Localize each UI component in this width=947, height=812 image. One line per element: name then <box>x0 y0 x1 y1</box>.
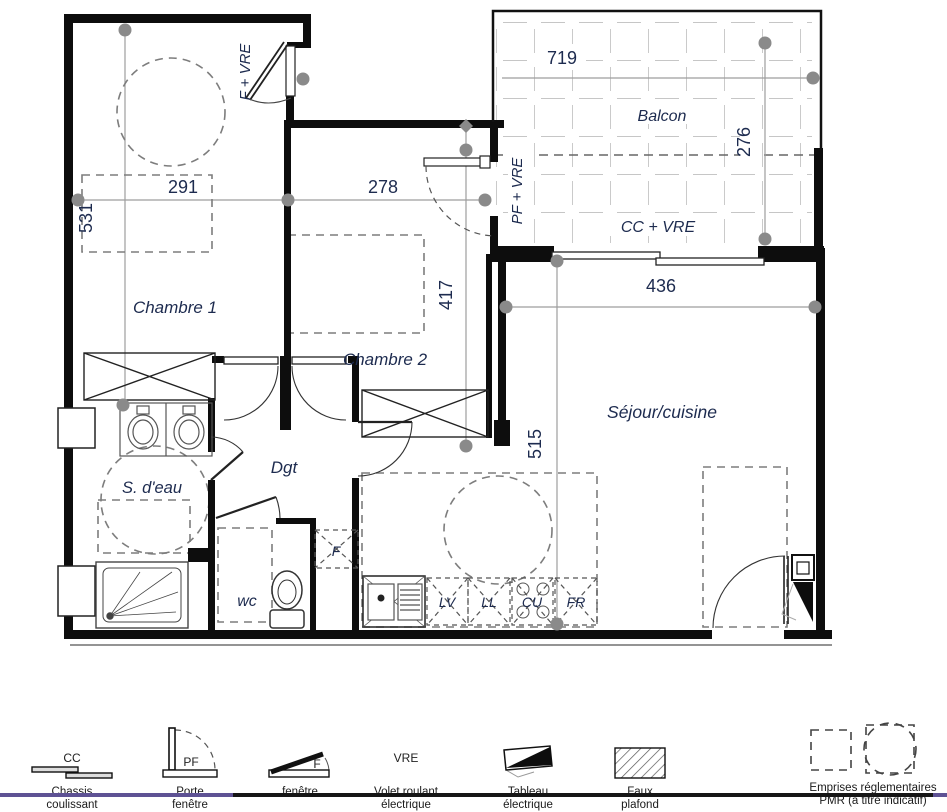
legend-code-vre: VRE <box>394 751 419 765</box>
legend-label-faux-2: plafond <box>621 799 659 812</box>
bottom-bar-purple-left <box>0 793 233 797</box>
legend-label-tableau-2: électrique <box>503 799 553 812</box>
room-label-chambre2: Chambre 2 <box>343 350 428 369</box>
dim-chambre1-width: 291 <box>168 177 198 197</box>
legend: CC Chassis coulissant PF Porte fenêtre <box>0 710 947 793</box>
electrical-panel-icon <box>500 740 556 780</box>
room-label-dgt: Dgt <box>271 458 299 477</box>
shower <box>96 562 188 628</box>
closet-chambre2 <box>362 390 488 437</box>
appliance-label-fr: FR <box>567 594 586 610</box>
appliance-label-f: F <box>332 543 342 559</box>
appliance-label-ll: LL <box>481 594 497 610</box>
legend-item-porte-fenetre: PF Porte fenêtre <box>145 712 235 812</box>
room-label-chambre1: Chambre 1 <box>133 298 217 317</box>
dim-balcon-width: 719 <box>547 48 577 68</box>
toilet <box>270 571 304 628</box>
legend-code-pf: PF <box>183 755 198 769</box>
wall-niches <box>58 408 95 616</box>
legend-label-cc-2: coulissant <box>46 799 97 812</box>
opening-label-pf-vre: PF + VRE <box>509 157 526 225</box>
room-label-wc: wc <box>237 593 257 610</box>
legend-code-cc: CC <box>63 751 80 765</box>
floor-plan-drawing: Chambre 1 Chambre 2 Séjour/cuisine S. d'… <box>0 0 947 710</box>
legend-item-vre: VRE Volet roulant électrique <box>366 736 446 812</box>
appliance-label-cu: CU <box>522 594 543 610</box>
dim-chambre1-height: 531 <box>76 203 96 233</box>
window-icon: F <box>267 744 333 780</box>
dim-sejour-width: 436 <box>646 276 676 296</box>
closet-chambre1 <box>84 353 215 400</box>
floor-plan-page: { "plan": { "rooms": { "chambre1": "Cham… <box>0 0 947 800</box>
opening-label-f-vre: F + VRE <box>237 43 254 101</box>
double-sink <box>120 403 212 456</box>
legend-item-fenetre: F fenêtre <box>255 744 345 799</box>
sliding-window-icon: CC <box>31 730 113 780</box>
room-label-balcon: Balcon <box>638 108 687 125</box>
vre-code: VRE <box>394 736 419 780</box>
bottom-bar-dark <box>233 793 933 797</box>
hatched-area-icon <box>613 738 667 780</box>
dim-chambre2-height: 417 <box>436 280 456 310</box>
legend-label-pf-2: fenêtre <box>172 799 208 812</box>
kitchen-sink <box>363 576 425 627</box>
room-label-sejour: Séjour/cuisine <box>607 402 717 422</box>
opening-label-cc-vre: CC + VRE <box>621 219 696 236</box>
legend-item-faux-plafond: Faux plafond <box>600 738 680 812</box>
dim-balcon-height: 276 <box>734 127 754 157</box>
legend-item-tableau-electrique: Tableau électrique <box>488 740 568 812</box>
dim-chambre2-width: 278 <box>368 177 398 197</box>
pmr-emprise-icon <box>808 718 938 776</box>
legend-label-vre-2: électrique <box>374 799 438 812</box>
bottom-bar-purple-right <box>933 793 947 797</box>
appliance-label-lv: LV <box>439 594 457 610</box>
legend-code-f: F <box>313 757 320 771</box>
dim-sejour-height: 515 <box>525 429 545 459</box>
room-label-sdeau: S. d'eau <box>122 479 182 497</box>
door-window-icon: PF <box>159 712 221 780</box>
